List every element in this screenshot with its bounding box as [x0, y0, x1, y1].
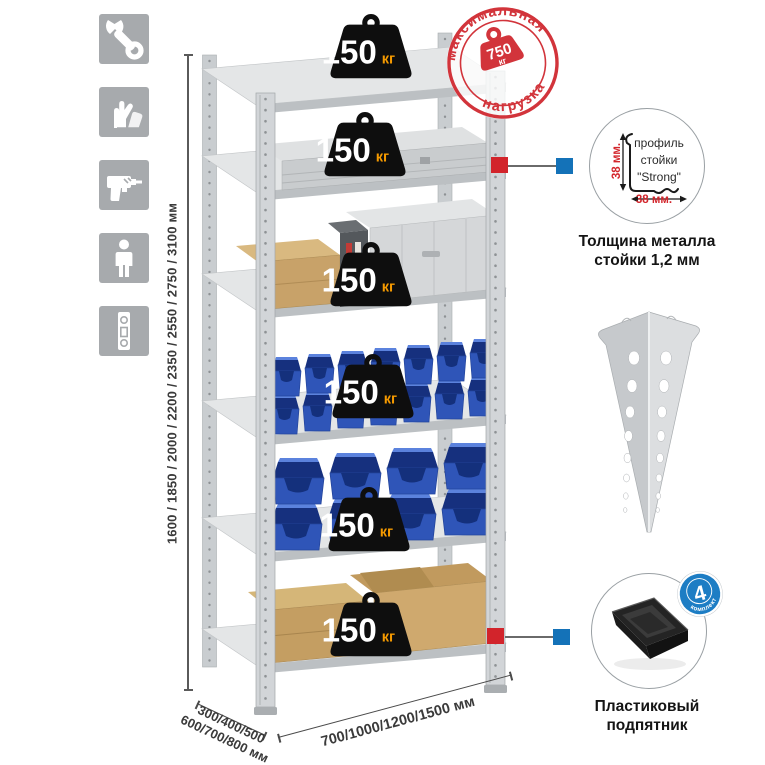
shelf-load-badge: 150 кг	[312, 240, 430, 316]
wrench-icon	[99, 14, 149, 64]
profile-height-dim: 38 мм.	[611, 131, 623, 191]
person-icon	[99, 233, 149, 283]
svg-text:кг: кг	[380, 525, 393, 541]
angle-post-image	[592, 300, 707, 545]
height-dimension-line	[187, 55, 189, 690]
svg-text:150: 150	[322, 613, 377, 650]
shelf-load-badge: 150 кг	[306, 110, 424, 186]
shelf-load-badge: 150 кг	[310, 485, 428, 561]
svg-text:кг: кг	[376, 150, 389, 166]
profile-callout-line	[508, 165, 558, 167]
height-values-label: 1600 / 1850 / 2000 / 2200 / 2350 / 2550 …	[165, 144, 180, 604]
svg-text:кг: кг	[384, 392, 397, 408]
plastic-foot-caption: Пластиковый подпятник	[562, 698, 732, 736]
profile-callout-red-marker	[491, 157, 508, 173]
svg-text:кг: кг	[382, 52, 395, 68]
svg-text:150: 150	[322, 263, 377, 300]
profile-label: профиль стойки "Strong"	[628, 135, 690, 185]
profile-callout-blue-marker	[556, 158, 573, 174]
post-profile-callout: профиль стойки "Strong" 38 мм. 38 мм.	[589, 108, 705, 224]
foot-callout-red-marker	[487, 628, 504, 644]
profile-width-dim: 38 мм.	[619, 194, 689, 206]
gloves-icon	[99, 87, 149, 137]
drill-icon	[99, 160, 149, 210]
svg-text:кг: кг	[382, 630, 395, 646]
svg-text:кг: кг	[382, 280, 395, 296]
svg-text:150: 150	[324, 375, 379, 412]
svg-text:150: 150	[316, 133, 371, 170]
level-icon	[99, 306, 149, 356]
profile-caption: Толщина металла стойки 1,2 мм	[562, 233, 732, 271]
shelf-load-badge: 150 кг	[312, 12, 430, 88]
svg-text:150: 150	[322, 35, 377, 72]
foot-callout-blue-marker	[553, 629, 570, 645]
shelf-load-badge: 150 кг	[314, 352, 432, 428]
foot-callout-line	[505, 636, 555, 638]
infographic-canvas: 1600 / 1850 / 2000 / 2200 / 2350 / 2550 …	[0, 0, 765, 765]
svg-text:150: 150	[320, 508, 375, 545]
shelf-load-badge: 150 кг	[312, 590, 430, 666]
